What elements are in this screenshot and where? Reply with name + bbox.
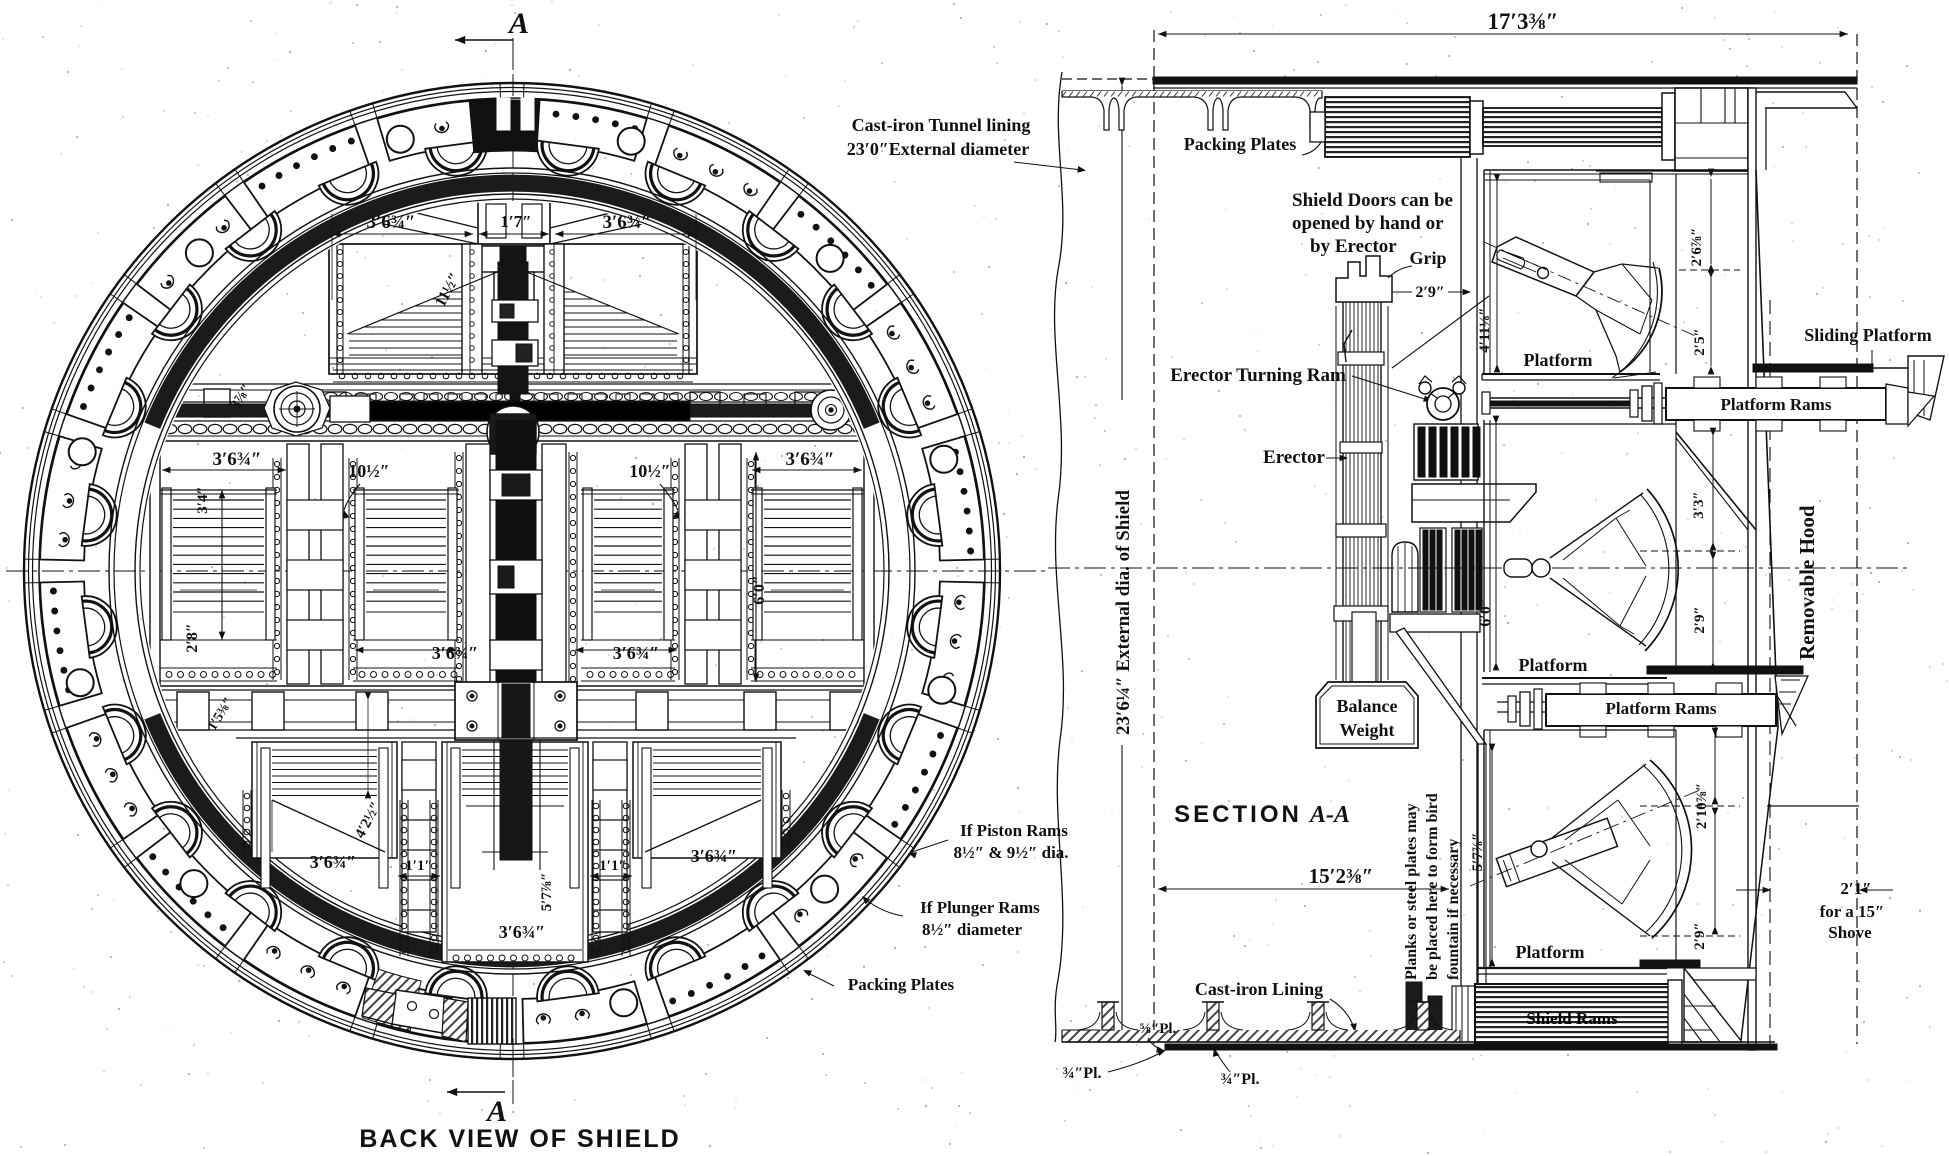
svg-text:6′0″: 6′0″ (1477, 597, 1494, 626)
svg-text:Platform: Platform (1519, 655, 1588, 675)
svg-text:Cast-iron Tunnel lining: Cast-iron Tunnel lining (852, 115, 1031, 135)
svg-text:A-A: A-A (1308, 802, 1350, 828)
svg-text:3′3″: 3′3″ (1691, 491, 1707, 519)
svg-text:3′4″: 3′4″ (195, 486, 211, 514)
svg-text:Erector Turning Ram: Erector Turning Ram (1170, 365, 1346, 386)
svg-text:2′5″: 2′5″ (1692, 328, 1708, 356)
svg-text:2′9″: 2′9″ (1692, 606, 1708, 634)
svg-text:3′6¾″: 3′6¾″ (785, 449, 834, 470)
svg-text:3′6¾″: 3′6¾″ (432, 643, 479, 663)
svg-text:Weight: Weight (1339, 720, 1394, 740)
svg-text:23′0″External diameter: 23′0″External diameter (847, 139, 1029, 159)
svg-text:5′7⅞″: 5′7⅞″ (539, 873, 555, 912)
svg-text:¾″Pl.: ¾″Pl. (1220, 1071, 1259, 1088)
svg-text:Platform: Platform (1524, 350, 1593, 370)
svg-text:fountain if necessary: fountain if necessary (1445, 839, 1462, 980)
svg-text:3′6¾″: 3′6¾″ (691, 846, 738, 866)
svg-text:6′0″: 6′0″ (751, 575, 768, 604)
svg-text:Shove: Shove (1828, 923, 1872, 942)
svg-text:A: A (507, 7, 529, 40)
svg-text:Platform Rams: Platform Rams (1721, 395, 1832, 414)
svg-text:2′6⅞″: 2′6⅞″ (1689, 228, 1705, 267)
svg-text:by Erector: by Erector (1310, 236, 1397, 257)
svg-text:15′2⅜″: 15′2⅜″ (1309, 864, 1374, 888)
svg-text:Sliding Platform: Sliding Platform (1804, 325, 1932, 345)
svg-text:If Piston Rams: If Piston Rams (960, 821, 1068, 840)
svg-text:If Plunger Rams: If Plunger Rams (920, 898, 1040, 917)
svg-text:5′7⅞″: 5′7⅞″ (1470, 833, 1486, 872)
svg-text:8½″ & 9½″ dia.: 8½″ & 9½″ dia. (953, 843, 1068, 862)
svg-text:3′6¾″: 3′6¾″ (310, 852, 357, 872)
svg-text:Packing Plates: Packing Plates (848, 975, 955, 994)
svg-text:be placed here to form bird: be placed here to form bird (1424, 793, 1441, 980)
svg-text:BACK VIEW OF SHIELD: BACK VIEW OF SHIELD (359, 1125, 680, 1153)
svg-text:8½″ diameter: 8½″ diameter (922, 920, 1022, 939)
svg-text:SECTION: SECTION (1174, 801, 1302, 828)
svg-text:¾″Pl.: ¾″Pl. (1062, 1065, 1101, 1082)
svg-text:1′1″: 1′1″ (405, 858, 433, 874)
svg-text:2′8″: 2′8″ (184, 623, 201, 652)
svg-text:3′6¾″: 3′6¾″ (613, 643, 660, 663)
svg-text:Planks or steel plates may: Planks or steel plates may (1403, 803, 1420, 980)
svg-text:17′3⅜″: 17′3⅜″ (1488, 9, 1559, 34)
svg-text:10½″: 10½″ (629, 461, 670, 481)
svg-text:23′6¼″ External dia. of Shield: 23′6¼″ External dia. of Shield (1113, 490, 1134, 735)
svg-text:Erector: Erector (1263, 447, 1325, 468)
svg-text:1′1″: 1′1″ (599, 858, 627, 874)
svg-text:Grip: Grip (1409, 248, 1446, 268)
svg-text:Cast-iron Lining: Cast-iron Lining (1195, 979, 1323, 999)
svg-text:Platform: Platform (1516, 942, 1585, 962)
svg-text:2′9″: 2′9″ (1415, 284, 1444, 301)
svg-text:Removable Hood: Removable Hood (1795, 505, 1819, 660)
svg-text:3′6¾″: 3′6¾″ (602, 212, 651, 233)
svg-text:for a 15″: for a 15″ (1820, 902, 1885, 921)
svg-text:1′7″: 1′7″ (500, 212, 531, 231)
svg-text:Shield Rams: Shield Rams (1526, 1009, 1618, 1028)
svg-text:⅝″Pl.: ⅝″Pl. (1140, 1021, 1177, 1037)
svg-text:A: A (485, 1095, 507, 1128)
svg-text:Platform Rams: Platform Rams (1606, 699, 1717, 718)
svg-text:Shield Doors can be: Shield Doors can be (1292, 190, 1453, 211)
svg-text:opened by hand or: opened by hand or (1292, 213, 1444, 234)
svg-text:10½″: 10½″ (348, 461, 389, 481)
svg-text:Packing Plates: Packing Plates (1184, 134, 1297, 154)
svg-text:3′6¾″: 3′6¾″ (366, 212, 415, 233)
svg-text:3′6¾″: 3′6¾″ (212, 449, 261, 470)
svg-text:Balance: Balance (1337, 696, 1398, 716)
svg-text:4′11⅛″: 4′11⅛″ (1477, 307, 1493, 352)
svg-text:3′6¾″: 3′6¾″ (499, 922, 546, 942)
